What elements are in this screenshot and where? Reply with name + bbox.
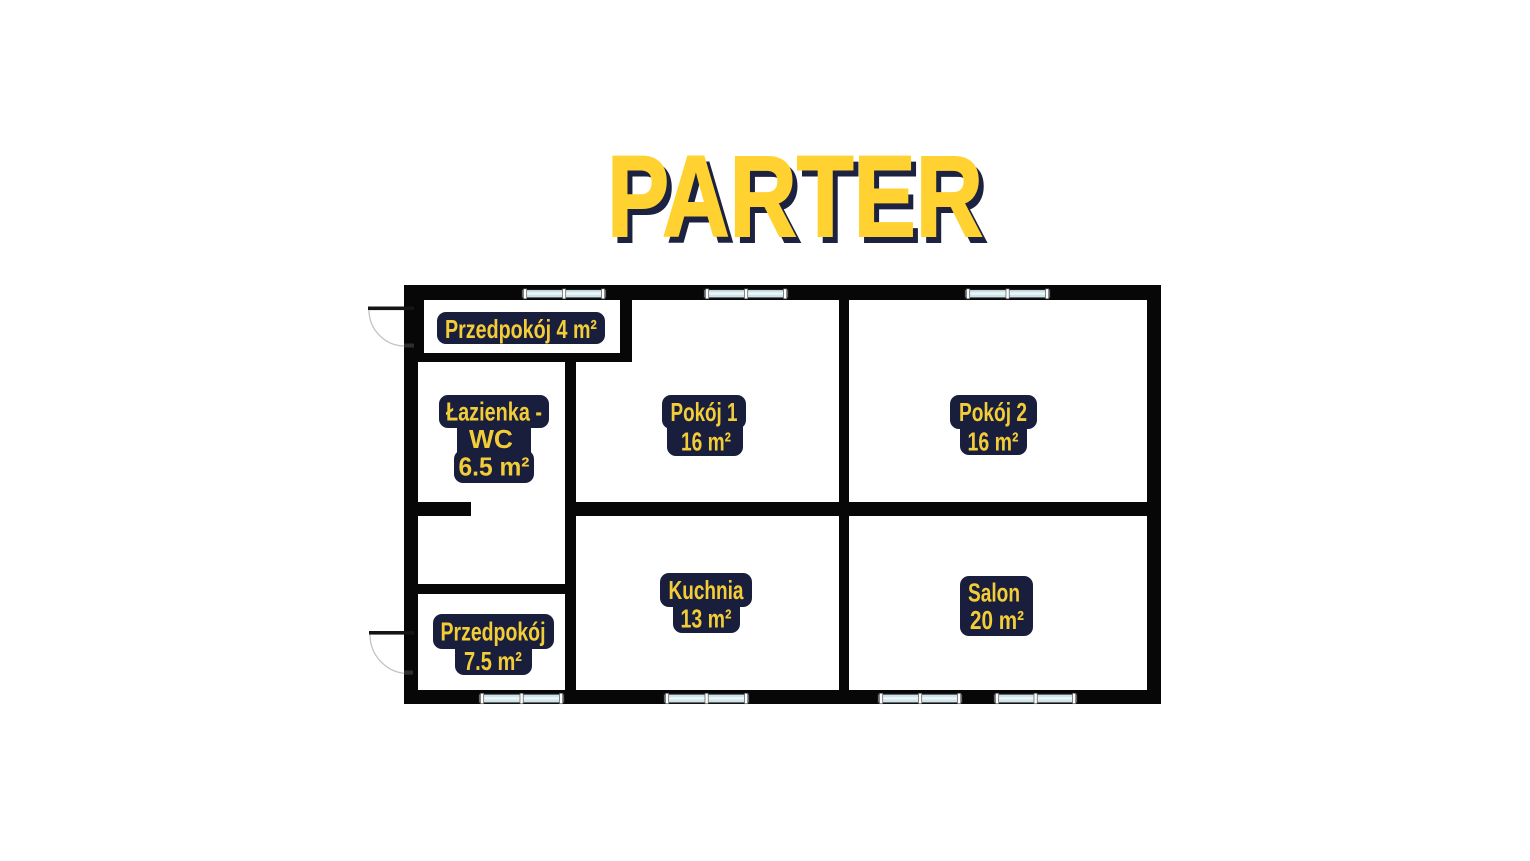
svg-text:Pokój 2: Pokój 2 [959, 397, 1027, 427]
svg-text:PARTER: PARTER [607, 133, 983, 261]
svg-text:WC: WC [469, 424, 513, 454]
svg-text:6.5 m²: 6.5 m² [459, 452, 530, 482]
svg-text:16 m²: 16 m² [681, 427, 731, 457]
svg-text:Przedpokój 4 m²: Przedpokój 4 m² [445, 314, 597, 344]
svg-text:13 m²: 13 m² [681, 604, 732, 634]
svg-text:Przedpokój: Przedpokój [441, 617, 546, 647]
svg-text:20 m²: 20 m² [970, 605, 1024, 635]
svg-text:7.5 m²: 7.5 m² [464, 646, 522, 676]
svg-text:Kuchnia: Kuchnia [669, 575, 744, 605]
svg-text:Pokój 1: Pokój 1 [671, 397, 738, 427]
svg-text:16 m²: 16 m² [968, 427, 1019, 457]
svg-text:Łazienka -: Łazienka - [446, 397, 542, 427]
svg-text:Salon: Salon [968, 578, 1020, 608]
